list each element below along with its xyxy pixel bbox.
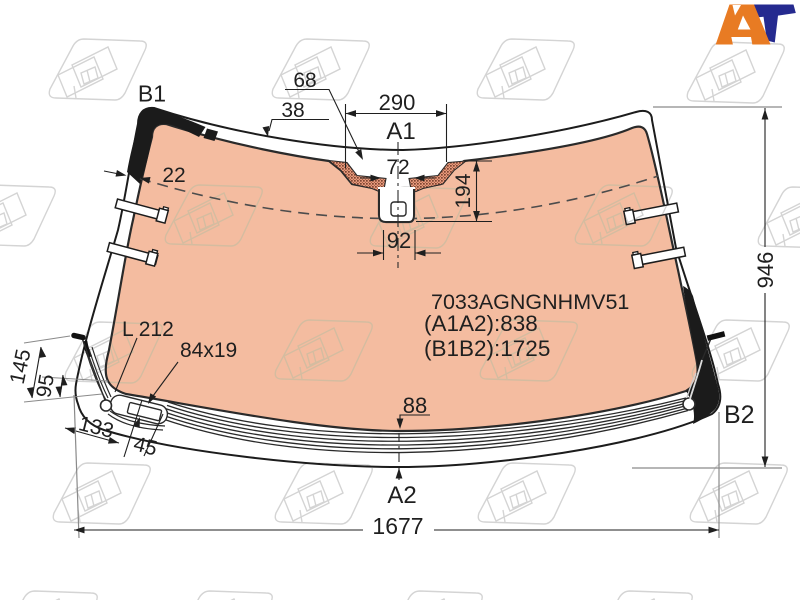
svg-text:B2: B2: [724, 401, 755, 429]
svg-text:38: 38: [281, 99, 304, 122]
svg-text:68: 68: [293, 69, 316, 92]
svg-text:95: 95: [32, 372, 59, 399]
svg-text:946: 946: [753, 252, 778, 289]
svg-text:1677: 1677: [372, 513, 423, 539]
svg-text:72: 72: [386, 156, 409, 179]
svg-text:84x19: 84x19: [180, 339, 237, 362]
svg-text:(A1A2):838: (A1A2):838: [424, 311, 538, 336]
svg-text:92: 92: [387, 228, 411, 253]
svg-text:B1: B1: [138, 81, 166, 107]
svg-text:A1: A1: [386, 118, 415, 145]
svg-text:A2: A2: [387, 482, 416, 509]
svg-text:22: 22: [162, 164, 185, 187]
svg-text:290: 290: [379, 90, 416, 115]
svg-text:(B1B2):1725: (B1B2):1725: [424, 336, 550, 361]
svg-text:194: 194: [452, 173, 475, 208]
svg-text:88: 88: [403, 393, 427, 418]
svg-text:L 212: L 212: [122, 318, 174, 341]
